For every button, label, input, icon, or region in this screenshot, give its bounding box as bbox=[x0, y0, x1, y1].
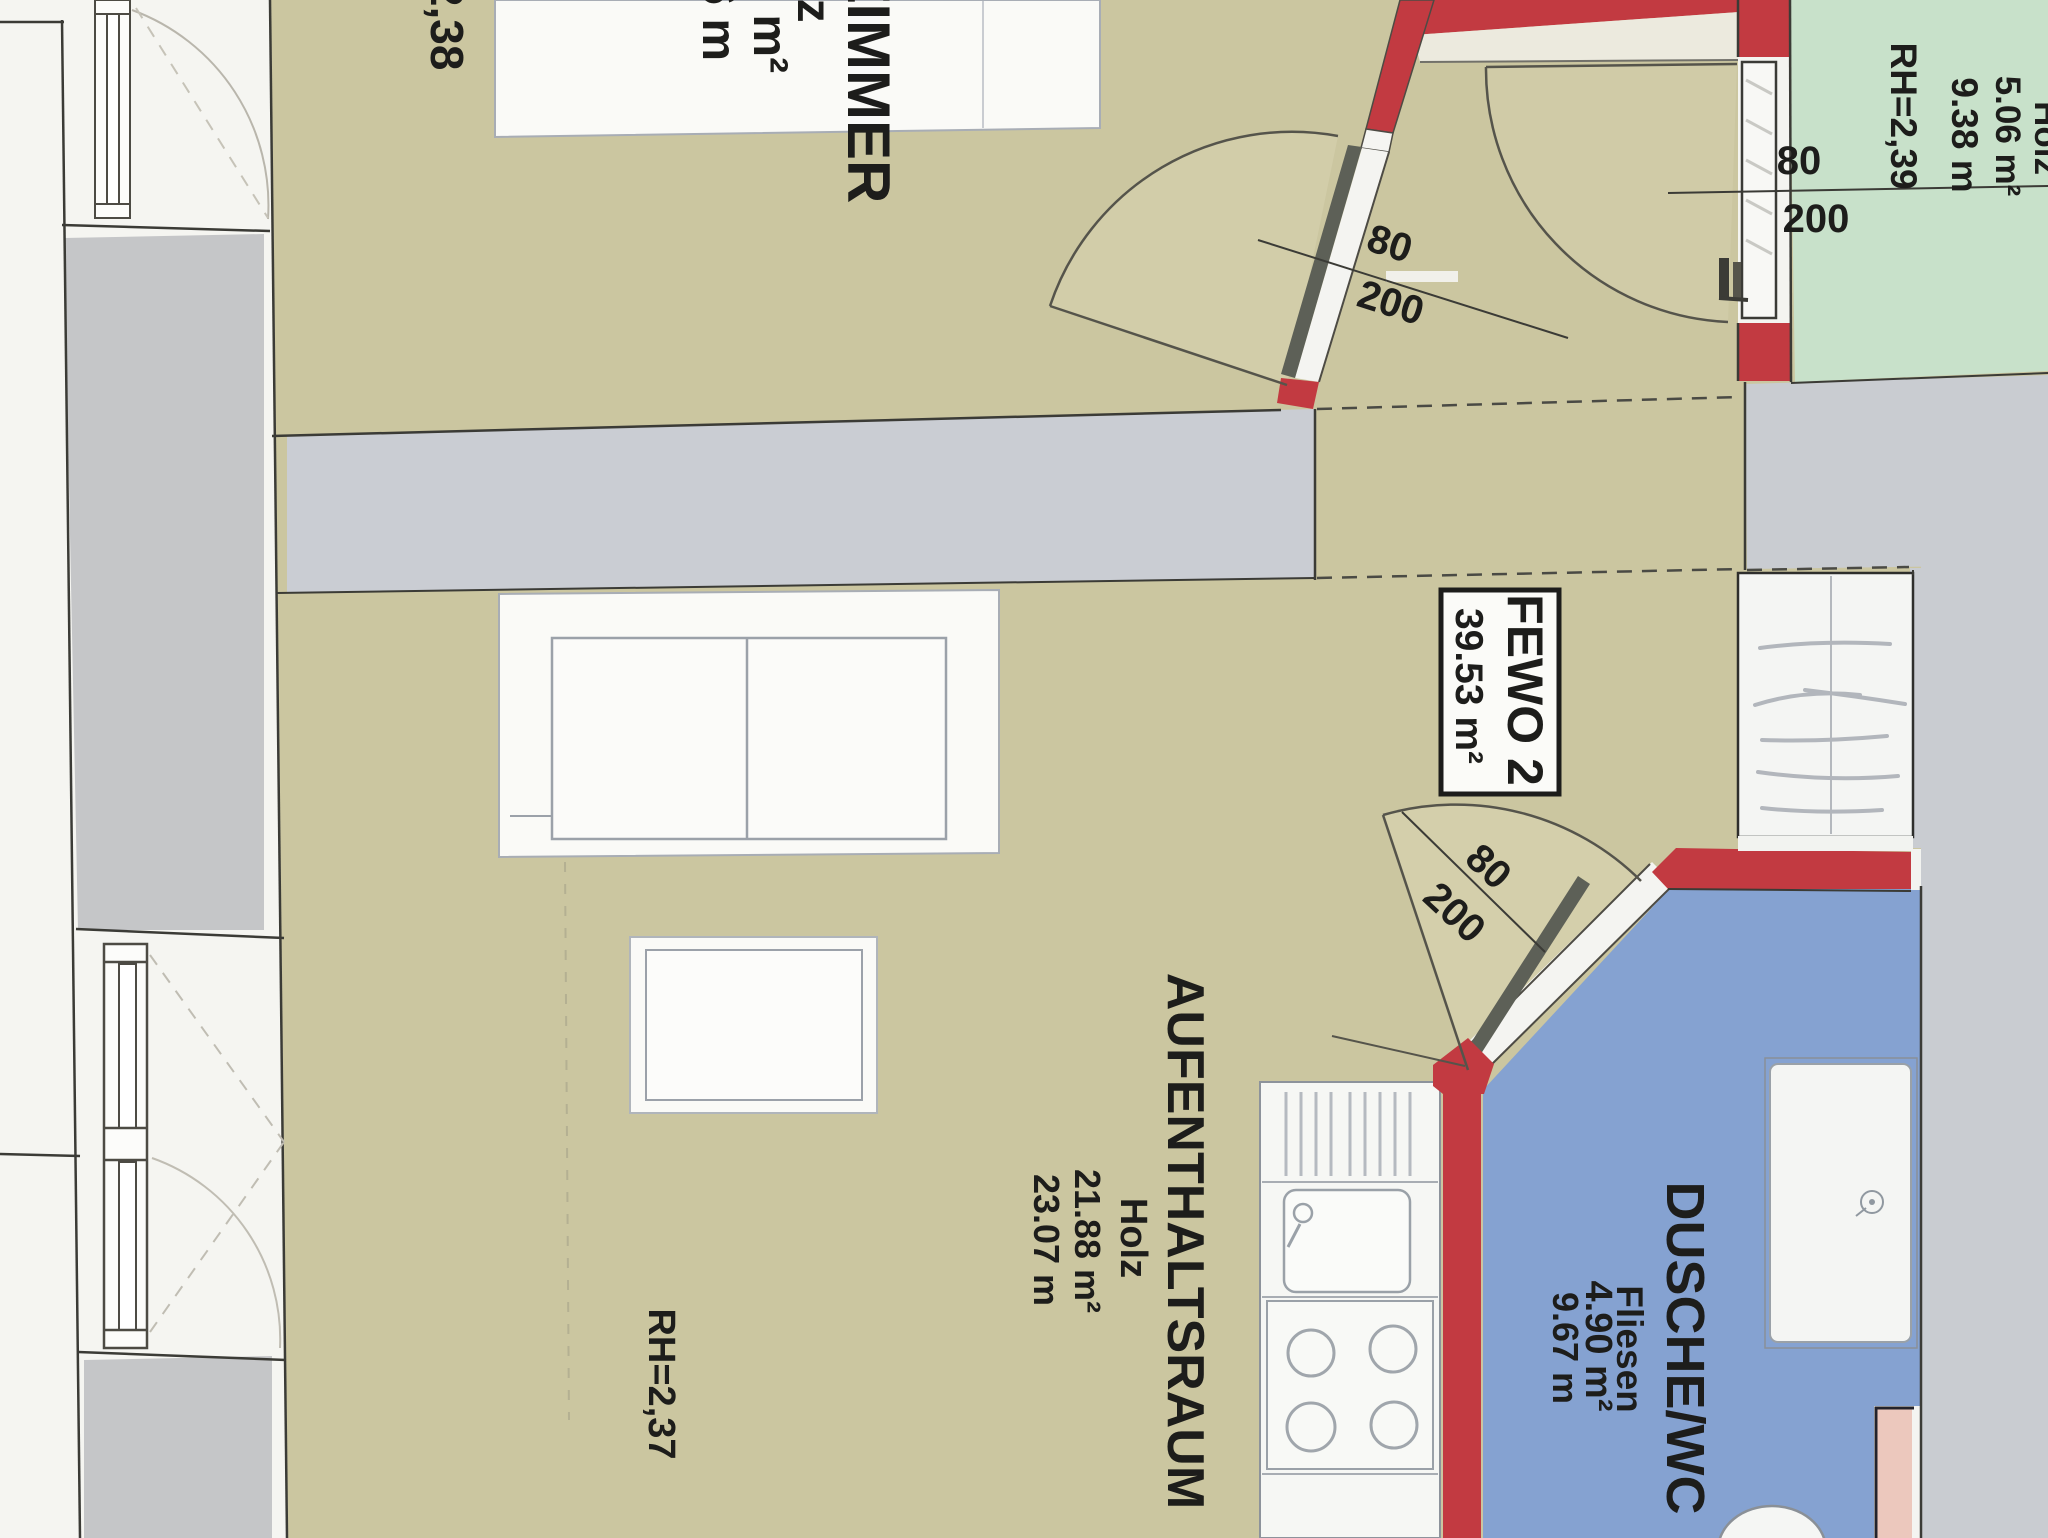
svg-text:RH=2,38: RH=2,38 bbox=[421, 0, 473, 70]
svg-text:5.06 m²: 5.06 m² bbox=[1988, 76, 2027, 197]
svg-text:ZIMMER: ZIMMER bbox=[835, 0, 902, 203]
svg-text:RH=2,37: RH=2,37 bbox=[640, 1308, 682, 1459]
svg-text:RH=2,39: RH=2,39 bbox=[1883, 42, 1924, 189]
svg-text:FEWO 2: FEWO 2 bbox=[1497, 594, 1553, 786]
svg-text:9.67 m: 9.67 m bbox=[1545, 1292, 1586, 1404]
svg-text:Holz: Holz bbox=[1112, 1198, 1154, 1278]
svg-text:15,75 m²: 15,75 m² bbox=[743, 0, 796, 73]
svg-text:200: 200 bbox=[1783, 197, 1850, 241]
svg-text:9.38 m: 9.38 m bbox=[1944, 77, 1985, 192]
svg-text:Holz: Holz bbox=[2027, 101, 2048, 175]
svg-text:DUSCHE/WC: DUSCHE/WC bbox=[1655, 1182, 1715, 1515]
svg-text:39.53 m²: 39.53 m² bbox=[1447, 608, 1490, 764]
svg-text:21.88 m²: 21.88 m² bbox=[1067, 1169, 1108, 1313]
svg-text:AUFENTHALTSRAUM: AUFENTHALTSRAUM bbox=[1156, 973, 1214, 1509]
svg-text:16,56 m: 16,56 m bbox=[692, 0, 745, 61]
svg-text:80: 80 bbox=[1777, 139, 1822, 183]
svg-text:23.07 m: 23.07 m bbox=[1026, 1174, 1067, 1306]
